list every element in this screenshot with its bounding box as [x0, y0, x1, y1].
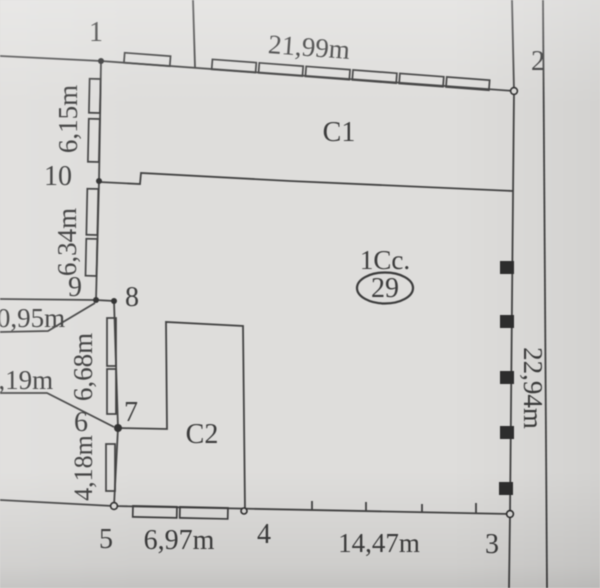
svg-text:10: 10: [44, 161, 72, 192]
svg-text:3: 3: [485, 529, 499, 560]
svg-text:29: 29: [371, 273, 399, 304]
svg-text:5: 5: [99, 524, 113, 555]
svg-text:6: 6: [74, 407, 88, 438]
svg-text:1: 1: [89, 17, 103, 48]
svg-text:14,47m: 14,47m: [338, 528, 420, 558]
svg-text:4: 4: [257, 519, 271, 550]
svg-text:1Cc.: 1Cc.: [360, 245, 410, 275]
svg-text:7: 7: [124, 397, 138, 428]
svg-text:6,15m: 6,15m: [53, 85, 83, 153]
svg-text:0,95m: 0,95m: [0, 303, 65, 333]
svg-text:4,18m: 4,18m: [69, 435, 98, 501]
svg-text:8: 8: [125, 282, 139, 313]
svg-text:6,68m: 6,68m: [68, 333, 98, 401]
svg-text:C2: C2: [186, 419, 219, 450]
svg-text:0,19m: 0,19m: [0, 365, 53, 395]
svg-text:21,99m: 21,99m: [267, 29, 351, 65]
svg-text:6,97m: 6,97m: [144, 525, 215, 556]
svg-text:C1: C1: [323, 117, 356, 148]
svg-text:2: 2: [531, 46, 545, 77]
svg-text:22,94m: 22,94m: [518, 347, 548, 429]
svg-text:6,34m: 6,34m: [52, 208, 82, 276]
